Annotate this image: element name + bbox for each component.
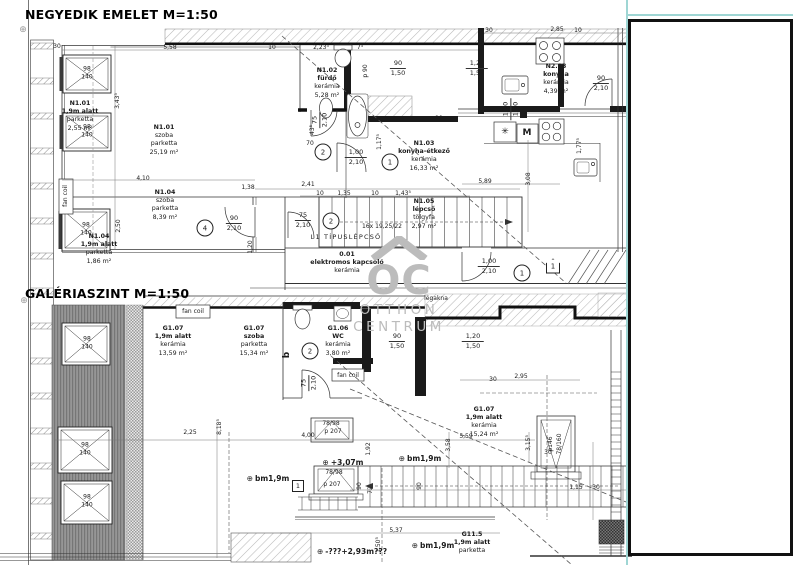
reference-marker: M: [523, 128, 532, 138]
reference-marker: 1: [546, 259, 560, 274]
dimension-text: 43⁵: [310, 125, 316, 135]
dimension-text: 78/98: [322, 421, 339, 427]
dimension-text: 72: [368, 486, 374, 494]
dimension-text: 78/160: [557, 433, 563, 454]
dimension-text: 3,15⁵: [526, 435, 532, 451]
dimension-fraction: 901,50: [389, 333, 405, 350]
rid: G1.07: [240, 325, 269, 333]
dimension-text: 10: [316, 191, 324, 197]
window-size-tag: 98140: [81, 494, 92, 509]
dimension-text: 3,43⁵: [115, 93, 121, 109]
dimension-text: 90: [417, 482, 423, 490]
dimension-text: fan coil: [182, 309, 204, 315]
s0: 1,9m alatt: [81, 241, 118, 249]
dimension-fraction: 752,10: [300, 375, 317, 391]
wb: 140: [81, 501, 92, 509]
upper-plan-title: NEGYEDIK EMELET M=1:50: [25, 7, 218, 22]
floorplan-sheet: OC OTTHON CENTRUM N1.011,9m alattparkett…: [0, 0, 800, 565]
level-point-icon: ⊕: [323, 458, 329, 467]
rid: G1.06: [325, 325, 351, 333]
rid: N1.01: [62, 100, 99, 108]
wa: 98: [81, 336, 92, 344]
wa: 98: [81, 494, 92, 502]
s0: 1,9m alatt: [454, 539, 491, 547]
dimension-text: 8,18⁵: [217, 419, 223, 435]
dimension-text: 1,92: [366, 442, 372, 455]
room-label: N1.02fürdőkerámia5,28 m²: [314, 67, 340, 100]
dimension-fraction: 1,201,50: [502, 98, 519, 120]
rid: N2.03: [543, 63, 569, 71]
rid: G11.5: [454, 531, 491, 539]
dimension-text: p 207: [324, 429, 341, 435]
fb: 1,50: [390, 69, 406, 77]
wb: 140: [79, 449, 90, 457]
dimension-text: ⊕: [19, 26, 27, 35]
dimension-text: ⊕bm1,9m: [399, 455, 442, 463]
dimension-text: 3,08: [526, 172, 532, 185]
s1: tölgyfa: [412, 214, 437, 222]
dimension-text: 30: [489, 377, 497, 383]
dimension-text: 1,15: [569, 485, 582, 491]
rid: G1.07: [155, 325, 192, 333]
reference-marker: 4: [197, 220, 214, 237]
s1: parketta: [81, 249, 118, 257]
s2: 1,86 m²: [81, 258, 118, 266]
dimension-fraction: 1,002,10: [345, 149, 367, 166]
blank-overlay-panel: [628, 19, 793, 556]
dimension-text: 10: [574, 28, 582, 34]
s1: parketta: [240, 341, 269, 349]
level-point-icon: ⊕: [247, 474, 253, 483]
rid: N1.03: [398, 140, 450, 148]
dimension-text: fan coil: [63, 185, 69, 207]
dimension-text: p 90: [364, 336, 370, 349]
dimension-text: 2,50: [116, 219, 122, 232]
s1: parketta: [454, 547, 491, 555]
dimension-text: L1 TÍPUSLÉPCSŐ: [311, 234, 382, 241]
reference-marker: 1: [292, 480, 304, 492]
ft: 90: [390, 60, 406, 69]
fb: 2,10: [593, 84, 609, 92]
s2: 16,33 m²: [398, 165, 450, 173]
level-point-icon: ⊕: [399, 454, 405, 463]
s2: 4,39 m²: [543, 88, 569, 96]
ft: 1,20: [502, 98, 511, 120]
fb: 2,10: [345, 158, 367, 166]
dimension-text: 1,77⁵: [577, 138, 583, 154]
reference-marker: 2: [323, 213, 340, 230]
s2: 5,28 m²: [314, 92, 340, 100]
dimension-text: 5,58: [163, 45, 176, 51]
dimension-text: 5,59: [459, 434, 472, 440]
window-size-tag: 98140: [81, 124, 92, 139]
fb: 2,10: [295, 221, 311, 229]
dimension-text: 2,25: [183, 430, 196, 436]
dimension-text: ⊕bm1,9m: [247, 475, 290, 483]
reference-marker: 2: [315, 144, 332, 161]
room-label: N1.05lépcsőtölgyfa2,97 m²: [412, 198, 437, 231]
dimension-text: ⊕+3,07m: [323, 459, 364, 467]
fb: 2,10: [226, 224, 242, 232]
dimension-text: fan coil: [337, 373, 359, 379]
dimension-fraction: 1,201,50: [466, 60, 488, 77]
s2: 2,97 m²: [412, 223, 437, 231]
dimension-text: p 207: [323, 482, 340, 488]
dimension-text: 1,20: [248, 240, 254, 253]
wa: 98: [81, 66, 92, 74]
wb: 140: [80, 229, 91, 237]
s2: 15,34 m²: [240, 350, 269, 358]
s1: parketta: [150, 140, 179, 148]
dimension-text: 2,85: [550, 27, 563, 33]
room-label: N2.03konyhakerámia4,39 m²: [543, 63, 569, 96]
wa: 98: [81, 124, 92, 132]
s1: kerámia: [310, 267, 383, 275]
reference-marker: ✳: [501, 127, 509, 137]
dimension-text: 4,00: [301, 433, 314, 439]
dimension-text: 2,95: [514, 374, 527, 380]
ft: 1,00: [478, 258, 500, 267]
dimension-fraction: 902,10: [593, 75, 609, 92]
dimension-text: 1,38: [241, 185, 254, 191]
ft: 1,20: [466, 60, 488, 69]
window-size-tag: 98140: [81, 336, 92, 351]
fb: 2,10: [310, 375, 318, 391]
ft: 75: [295, 212, 311, 221]
s1: kerámia: [155, 341, 192, 349]
ft: 75: [300, 375, 309, 391]
dimension-text: 5,37: [389, 528, 402, 534]
dimension-text: 7⁵: [357, 45, 363, 51]
dimension-text: légakna: [424, 296, 448, 302]
window-size-tag: 98140: [80, 222, 91, 237]
fb: 1,50: [466, 69, 488, 77]
wa: 98: [80, 222, 91, 230]
dimension-text: 30: [485, 28, 493, 34]
s2: 2,55 m²: [62, 125, 99, 133]
dimension-fraction: 752,10: [295, 212, 311, 229]
s1: parketta: [62, 116, 99, 124]
room-label: 0.01elektromos kapcsolókerámia: [310, 251, 383, 276]
room-label: N1.04szobaparketta8,39 m²: [152, 189, 179, 222]
wb: 140: [81, 73, 92, 81]
s0: szoba: [152, 197, 179, 205]
level-point-icon: ⊕: [317, 547, 323, 556]
s1: kerámia: [325, 341, 351, 349]
rid: N1.05: [412, 198, 437, 206]
dimension-text: 30: [592, 485, 600, 491]
rid: N1.02: [314, 67, 340, 75]
s1: kerámia: [398, 156, 450, 164]
room-label: N1.011,9m alattparketta2,55 m²: [62, 100, 99, 133]
wa: 98: [79, 442, 90, 450]
room-label: N1.041,9m alattparketta1,86 m²: [81, 233, 118, 266]
dimension-text: 1,17⁵: [377, 134, 383, 150]
dimension-text: 3,58: [446, 438, 452, 451]
wb: 140: [81, 343, 92, 351]
teal-guide-line-horizontal: [626, 14, 793, 16]
room-label: G1.07szobaparketta15,34 m²: [240, 325, 269, 358]
s1: kerámia: [314, 83, 340, 91]
fb: 1,50: [512, 98, 520, 120]
s0: szoba: [240, 333, 269, 341]
rid: N1.01: [150, 124, 179, 132]
dimension-text: 2,41: [301, 182, 314, 188]
ft: 90: [593, 75, 609, 84]
s0: 1,9m alatt: [62, 108, 99, 116]
s2: 25,19 m²: [150, 149, 179, 157]
reference-marker: 1: [514, 265, 531, 282]
window-size-tag: 98140: [79, 442, 90, 457]
dimension-fraction: 1,002,10: [478, 258, 500, 275]
dimension-text: 78/98: [325, 470, 342, 476]
ft: 90: [389, 333, 405, 342]
s2: 3,80 m²: [325, 350, 351, 358]
s0: szoba: [150, 132, 179, 140]
reference-marker: 1: [382, 154, 399, 171]
dimension-text: 30: [53, 44, 61, 50]
dimension-text: 1,43⁵: [395, 191, 411, 197]
rid: 0.01: [310, 251, 383, 259]
dimension-text: 10: [268, 45, 276, 51]
fb: 1,50: [389, 342, 405, 350]
ft: 1,00: [345, 149, 367, 158]
ft: 1,20: [462, 333, 484, 342]
reference-marker: b: [282, 352, 292, 358]
lower-plan-title: GALÉRIASZINT M=1:50: [25, 286, 189, 301]
reference-marker: 2: [302, 343, 319, 360]
room-label: G1.071,9m alattkerámia13,59 m²: [155, 325, 192, 358]
dimension-text: 4,10: [136, 176, 149, 182]
level-point-icon: ⊕: [412, 541, 418, 550]
dimension-text: 1,35: [337, 191, 350, 197]
dimension-text: 90: [357, 482, 363, 490]
dimension-text: 16x 19,25/22: [362, 224, 402, 230]
room-label: G1.06WCkerámia3,80 m²: [325, 325, 351, 358]
dimension-fraction: 902,10: [226, 215, 242, 232]
dimension-text: ⊕-???+2,93m???: [317, 548, 387, 556]
s2: 8,39 m²: [152, 214, 179, 222]
room-label: N1.01szobaparketta25,19 m²: [150, 124, 179, 157]
dimension-text: p 90: [429, 116, 442, 122]
s1: kerámia: [543, 79, 569, 87]
window-size-tag: 98140: [81, 66, 92, 81]
dimension-text: 5,89: [478, 179, 491, 185]
s1: kerámia: [466, 422, 503, 430]
ft: 90: [226, 215, 242, 224]
dimension-text: 30: [544, 450, 552, 456]
dimension-text: 70: [306, 141, 314, 147]
s2: 13,59 m²: [155, 350, 192, 358]
wb: 140: [81, 131, 92, 139]
dimension-fraction: 901,50: [390, 60, 406, 77]
fb: 2,10: [478, 267, 500, 275]
rid: N1.04: [152, 189, 179, 197]
dimension-text: ⊕bm1,9m: [412, 542, 455, 550]
dimension-text: 2,23⁵: [313, 45, 329, 51]
fb: 2,10: [321, 112, 329, 128]
dimension-fraction: 1,201,50: [462, 333, 484, 350]
room-label: G11.51,9m alattparketta: [454, 531, 491, 556]
fb: 1,50: [462, 342, 484, 350]
rid: G1.07: [466, 406, 503, 414]
room-label: N1.03konyha-étkezőkerámia16,33 m²: [398, 140, 450, 173]
dimension-text: 10: [371, 191, 379, 197]
s1: parketta: [152, 205, 179, 213]
dimension-text: p 90: [363, 64, 369, 77]
s0: lépcső: [412, 206, 437, 214]
